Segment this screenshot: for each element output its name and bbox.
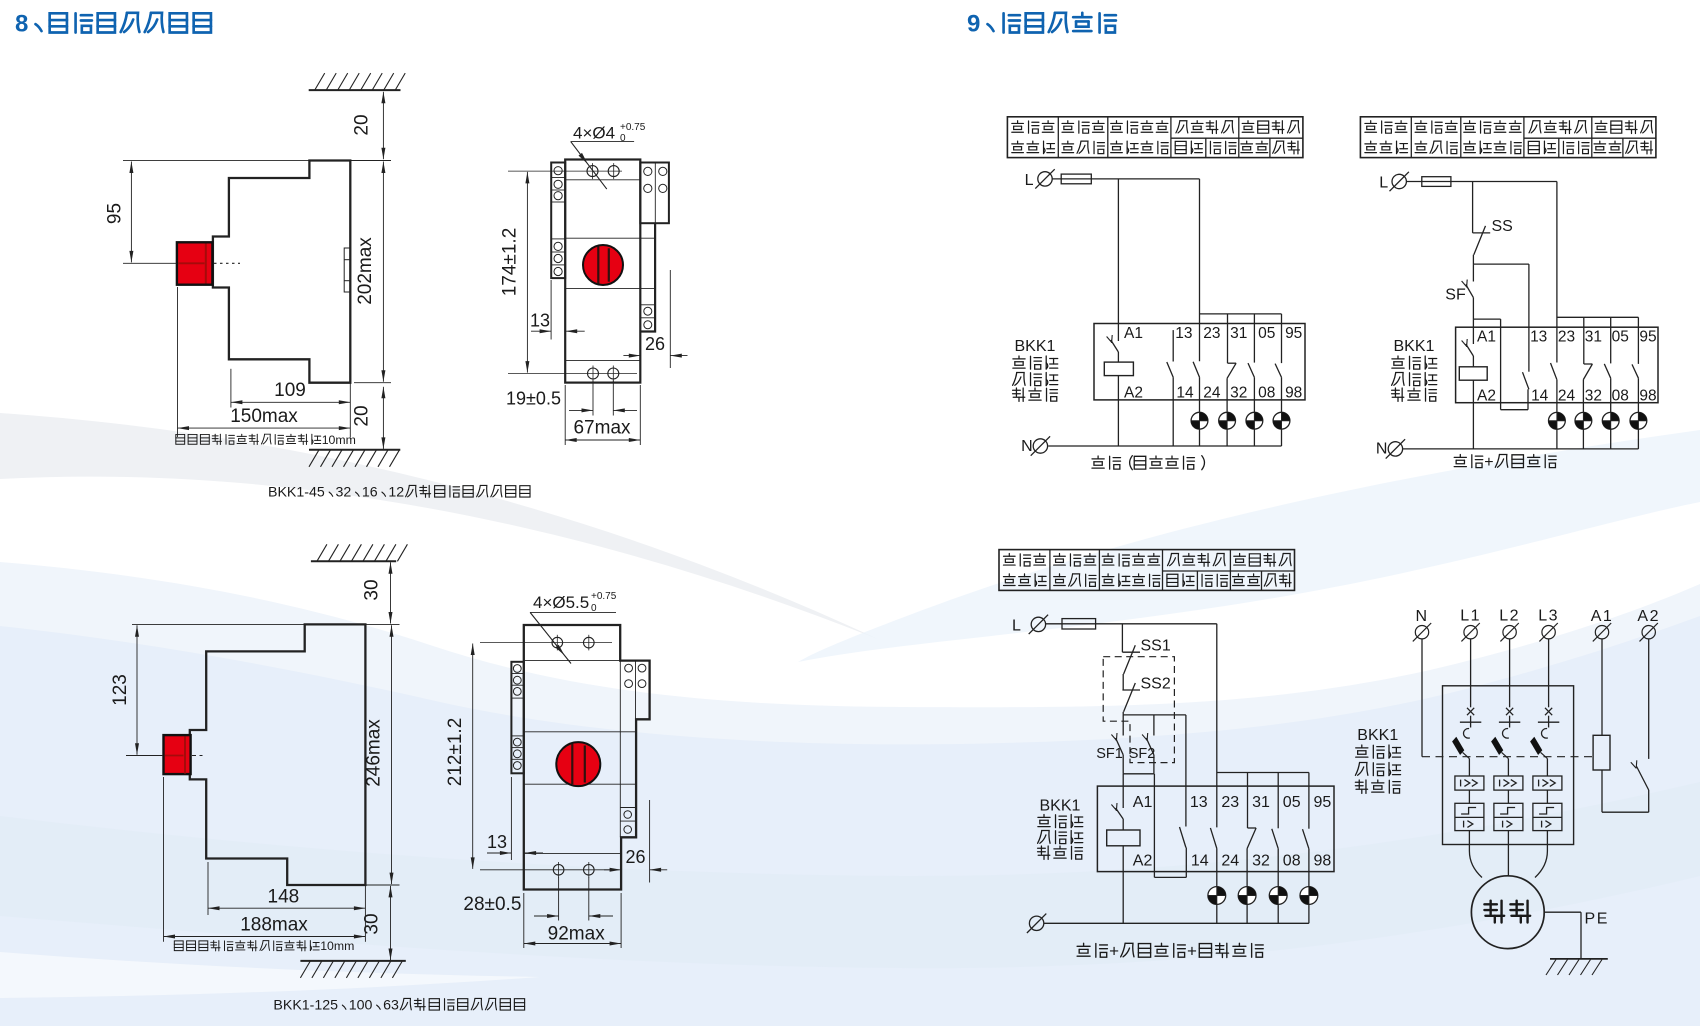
- svg-text:148: 148: [268, 887, 300, 908]
- svg-text:L: L: [1025, 172, 1034, 189]
- svg-text:95: 95: [1314, 794, 1332, 811]
- svg-text:A2: A2: [1124, 385, 1143, 402]
- svg-text:A2: A2: [1637, 608, 1660, 625]
- svg-text:L1: L1: [1460, 607, 1481, 624]
- svg-text:67max: 67max: [573, 418, 631, 439]
- svg-text:4×Ø4: 4×Ø4: [573, 124, 615, 143]
- svg-text:12: 12: [388, 485, 404, 501]
- svg-text:16: 16: [362, 485, 378, 501]
- svg-text:98: 98: [1314, 853, 1332, 870]
- svg-text:08: 08: [1258, 385, 1275, 402]
- svg-text:26: 26: [625, 847, 645, 867]
- svg-text:92max: 92max: [548, 923, 606, 944]
- svg-text:13: 13: [1175, 325, 1192, 342]
- svg-text:4×Ø5.5: 4×Ø5.5: [533, 593, 589, 612]
- svg-text:BKK1: BKK1: [1015, 338, 1056, 355]
- svg-text:24: 24: [1558, 388, 1576, 405]
- svg-text:+: +: [1187, 942, 1197, 961]
- svg-text:23: 23: [1203, 325, 1220, 342]
- svg-text:32: 32: [1230, 385, 1247, 402]
- svg-text:N: N: [1021, 438, 1033, 455]
- svg-text:23: 23: [1558, 329, 1575, 346]
- svg-text:SF1: SF1: [1096, 746, 1123, 762]
- svg-text:10mm: 10mm: [320, 939, 354, 953]
- svg-text:08: 08: [1612, 388, 1629, 405]
- svg-text:95: 95: [1285, 325, 1302, 342]
- svg-text:188max: 188max: [240, 915, 308, 936]
- svg-text:13: 13: [1190, 794, 1208, 811]
- svg-text:32: 32: [336, 485, 352, 501]
- svg-text:A1: A1: [1591, 608, 1614, 625]
- svg-text:13: 13: [1530, 329, 1547, 346]
- svg-text:A1: A1: [1133, 794, 1153, 811]
- svg-text:32: 32: [1585, 388, 1602, 405]
- svg-text:14: 14: [1176, 385, 1194, 402]
- svg-text:08: 08: [1283, 853, 1301, 870]
- svg-text:212±1.2: 212±1.2: [445, 718, 466, 787]
- svg-text:SF2: SF2: [1129, 746, 1156, 762]
- svg-text:98: 98: [1639, 388, 1656, 405]
- svg-text:100: 100: [349, 998, 373, 1014]
- svg-text:31: 31: [1230, 325, 1247, 342]
- svg-text:19±0.5: 19±0.5: [506, 389, 561, 409]
- svg-text:L: L: [1012, 618, 1021, 635]
- svg-text:14: 14: [1531, 388, 1549, 405]
- svg-text:L3: L3: [1538, 607, 1559, 624]
- svg-text:BKK1-45: BKK1-45: [268, 485, 325, 501]
- svg-text:24: 24: [1221, 853, 1239, 870]
- svg-text:9: 9: [967, 11, 980, 38]
- svg-text:+0.75: +0.75: [591, 591, 617, 602]
- svg-text:+: +: [1484, 454, 1493, 471]
- svg-text:N: N: [1376, 441, 1388, 458]
- svg-text:32: 32: [1252, 853, 1270, 870]
- svg-text:31: 31: [1252, 794, 1270, 811]
- svg-text:98: 98: [1285, 385, 1302, 402]
- svg-text:20: 20: [352, 405, 373, 426]
- svg-text:BKK1: BKK1: [1357, 727, 1398, 744]
- svg-text:BKK1: BKK1: [1394, 338, 1435, 355]
- svg-text:N: N: [1415, 608, 1428, 625]
- svg-text:14: 14: [1191, 853, 1209, 870]
- svg-text:SS: SS: [1492, 218, 1513, 235]
- svg-text:+0.75: +0.75: [620, 122, 646, 133]
- svg-text:28±0.5: 28±0.5: [463, 894, 521, 915]
- svg-text:SS2: SS2: [1141, 676, 1171, 693]
- svg-text:10mm: 10mm: [322, 433, 356, 447]
- svg-text:8: 8: [15, 11, 28, 38]
- svg-text:20: 20: [352, 114, 373, 135]
- svg-text:109: 109: [274, 380, 306, 401]
- svg-text:30: 30: [362, 579, 383, 600]
- svg-text:246max: 246max: [364, 719, 385, 787]
- svg-text:13: 13: [530, 311, 550, 331]
- svg-text:05: 05: [1258, 325, 1275, 342]
- svg-text:150max: 150max: [230, 406, 298, 427]
- svg-text:A1: A1: [1477, 329, 1496, 346]
- svg-text:05: 05: [1612, 329, 1629, 346]
- svg-text:13: 13: [487, 832, 507, 852]
- svg-text:202max: 202max: [355, 237, 376, 305]
- svg-text:30: 30: [362, 913, 383, 934]
- svg-text:63: 63: [383, 998, 399, 1014]
- svg-text:A2: A2: [1133, 853, 1153, 870]
- svg-text:+: +: [1109, 942, 1119, 961]
- svg-text:BKK1: BKK1: [1040, 798, 1081, 815]
- svg-text:24: 24: [1203, 385, 1221, 402]
- svg-text:05: 05: [1283, 794, 1301, 811]
- svg-text:26: 26: [645, 334, 665, 354]
- svg-text:SS1: SS1: [1141, 638, 1171, 655]
- svg-text:95: 95: [105, 203, 126, 224]
- svg-text:31: 31: [1585, 329, 1602, 346]
- svg-text:L2: L2: [1499, 607, 1520, 624]
- svg-text:0: 0: [620, 133, 626, 144]
- svg-text:174±1.2: 174±1.2: [500, 228, 521, 297]
- svg-text:L: L: [1379, 175, 1388, 192]
- svg-text:PE: PE: [1585, 911, 1609, 928]
- svg-text:123: 123: [110, 674, 131, 706]
- svg-text:SF: SF: [1445, 287, 1466, 304]
- svg-text:95: 95: [1639, 329, 1656, 346]
- svg-text:23: 23: [1221, 794, 1239, 811]
- svg-text:A1: A1: [1124, 325, 1143, 342]
- svg-text:BKK1-125: BKK1-125: [273, 998, 338, 1014]
- svg-text:A2: A2: [1477, 388, 1496, 405]
